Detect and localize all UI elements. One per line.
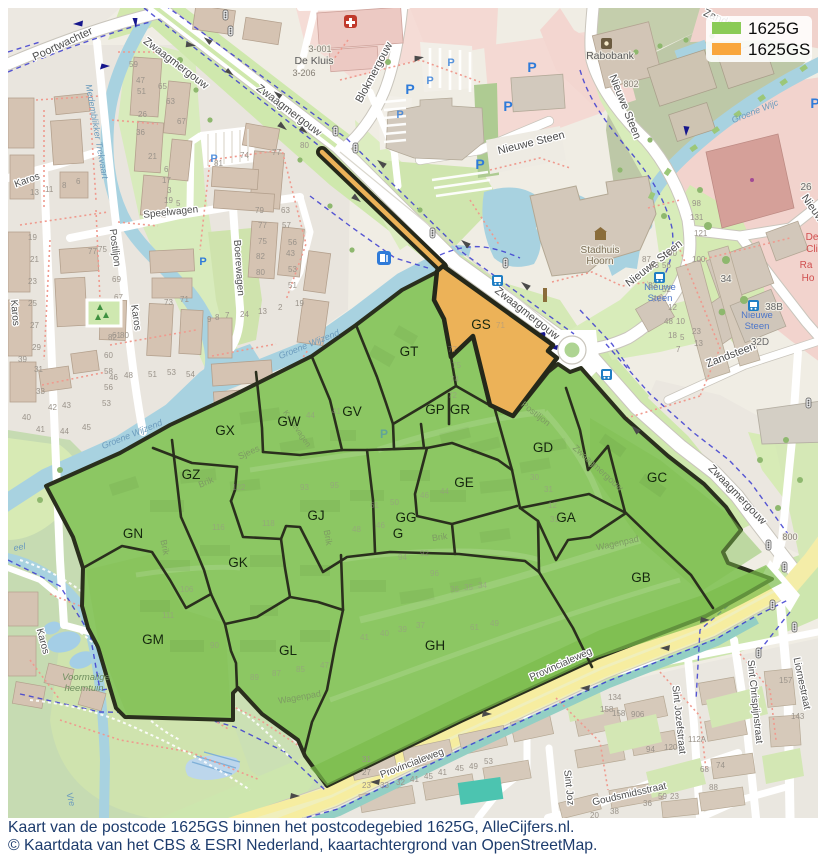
svg-text:De: De xyxy=(806,232,819,243)
svg-text:69: 69 xyxy=(112,275,121,284)
svg-text:P: P xyxy=(380,427,388,441)
svg-text:P: P xyxy=(396,109,403,121)
svg-text:33: 33 xyxy=(36,387,45,396)
svg-text:43: 43 xyxy=(286,249,295,258)
svg-text:GK: GK xyxy=(228,555,248,570)
svg-text:21: 21 xyxy=(148,152,157,161)
svg-text:56: 56 xyxy=(662,261,671,270)
svg-text:77: 77 xyxy=(258,221,267,230)
svg-text:39: 39 xyxy=(398,625,407,634)
svg-text:34: 34 xyxy=(478,581,487,590)
svg-text:71: 71 xyxy=(180,295,189,304)
svg-text:GW: GW xyxy=(277,414,301,429)
svg-text:59: 59 xyxy=(658,792,667,801)
svg-text:3-206: 3-206 xyxy=(292,68,315,78)
svg-text:36: 36 xyxy=(136,128,145,137)
svg-text:32D: 32D xyxy=(751,337,769,348)
svg-text:63: 63 xyxy=(281,206,290,215)
svg-text:87: 87 xyxy=(272,669,281,678)
svg-text:56: 56 xyxy=(288,238,297,247)
svg-text:44: 44 xyxy=(440,487,449,496)
svg-text:34: 34 xyxy=(720,274,732,285)
svg-text:5: 5 xyxy=(680,333,685,342)
svg-text:GG: GG xyxy=(395,510,416,525)
svg-text:112A: 112A xyxy=(688,735,707,744)
svg-text:Nieuwe: Nieuwe xyxy=(741,310,773,321)
svg-text:51: 51 xyxy=(288,281,297,290)
svg-text:44: 44 xyxy=(60,427,69,436)
svg-text:63: 63 xyxy=(166,97,175,106)
svg-text:Voormalige: Voormalige xyxy=(62,672,110,683)
svg-text:3-001: 3-001 xyxy=(308,44,331,54)
svg-text:158: 158 xyxy=(612,709,626,718)
svg-text:Steen: Steen xyxy=(745,321,770,332)
svg-text:GL: GL xyxy=(279,643,298,658)
svg-text:P: P xyxy=(475,156,484,172)
svg-text:80: 80 xyxy=(300,141,309,150)
svg-text:GP: GP xyxy=(425,402,445,417)
svg-text:13: 13 xyxy=(258,307,267,316)
svg-text:79: 79 xyxy=(255,206,264,215)
svg-text:68: 68 xyxy=(700,765,709,774)
svg-text:88: 88 xyxy=(709,783,718,792)
svg-text:75: 75 xyxy=(452,361,461,370)
svg-text:GD: GD xyxy=(533,440,554,455)
svg-text:74: 74 xyxy=(450,375,459,384)
svg-text:18: 18 xyxy=(668,331,677,340)
svg-text:74: 74 xyxy=(716,761,725,770)
svg-text:19: 19 xyxy=(295,299,304,308)
svg-text:111: 111 xyxy=(162,611,175,620)
svg-text:906: 906 xyxy=(631,710,645,719)
svg-text:13: 13 xyxy=(694,339,703,348)
svg-text:48: 48 xyxy=(664,317,673,326)
svg-text:8: 8 xyxy=(215,313,220,322)
svg-text:9: 9 xyxy=(207,315,212,324)
svg-text:158: 158 xyxy=(600,705,614,714)
svg-text:36: 36 xyxy=(450,585,459,594)
svg-text:75: 75 xyxy=(258,237,267,246)
svg-text:Rabobank: Rabobank xyxy=(586,50,635,62)
svg-text:De Kluis: De Kluis xyxy=(294,55,333,67)
svg-text:82: 82 xyxy=(256,252,265,261)
svg-text:23: 23 xyxy=(670,792,679,801)
svg-text:23: 23 xyxy=(692,327,701,336)
svg-text:11: 11 xyxy=(45,185,54,194)
svg-text:Cli: Cli xyxy=(806,244,818,255)
svg-text:67: 67 xyxy=(177,117,186,126)
svg-text:Karos: Karos xyxy=(8,299,21,326)
svg-text:35: 35 xyxy=(464,583,473,592)
svg-text:59: 59 xyxy=(129,60,138,69)
svg-text:38: 38 xyxy=(610,807,619,816)
svg-text:98: 98 xyxy=(692,199,701,208)
svg-text:GH: GH xyxy=(425,638,445,653)
svg-text:37: 37 xyxy=(416,621,425,630)
svg-text:1625GS: 1625GS xyxy=(748,40,810,59)
svg-text:95: 95 xyxy=(330,481,339,490)
svg-text:134: 134 xyxy=(608,693,622,702)
svg-text:41: 41 xyxy=(410,775,419,784)
svg-text:87: 87 xyxy=(642,255,651,264)
svg-text:1625G: 1625G xyxy=(748,19,799,38)
svg-text:96: 96 xyxy=(430,569,439,578)
svg-text:131: 131 xyxy=(690,213,704,222)
svg-text:80: 80 xyxy=(256,268,265,277)
svg-text:120: 120 xyxy=(664,743,678,752)
svg-text:6: 6 xyxy=(76,177,81,186)
svg-text:GV: GV xyxy=(342,404,362,419)
svg-text:13: 13 xyxy=(30,188,39,197)
svg-text:26: 26 xyxy=(138,110,147,119)
svg-text:Ho: Ho xyxy=(802,273,815,284)
svg-text:39: 39 xyxy=(18,355,27,364)
svg-text:49: 49 xyxy=(469,762,478,771)
svg-text:61: 61 xyxy=(370,501,379,510)
svg-text:31: 31 xyxy=(34,365,43,374)
svg-text:48: 48 xyxy=(124,371,133,380)
svg-text:23: 23 xyxy=(362,781,371,790)
svg-text:31: 31 xyxy=(544,485,553,494)
svg-text:46: 46 xyxy=(420,491,429,500)
svg-text:Kaart van de postcode 1625GS b: Kaart van de postcode 1625GS binnen het … xyxy=(8,819,574,836)
svg-text:106: 106 xyxy=(180,585,194,594)
svg-text:45: 45 xyxy=(82,423,91,432)
svg-text:53: 53 xyxy=(288,265,297,274)
svg-text:60: 60 xyxy=(104,351,113,360)
svg-text:46: 46 xyxy=(376,521,385,530)
svg-text:80: 80 xyxy=(120,331,129,340)
svg-text:19: 19 xyxy=(28,233,37,242)
svg-text:heemtuin: heemtuin xyxy=(64,683,103,694)
svg-text:143: 143 xyxy=(791,712,805,721)
svg-text:32: 32 xyxy=(396,778,405,787)
svg-text:41: 41 xyxy=(36,425,45,434)
svg-text:77: 77 xyxy=(448,345,457,354)
svg-text:GN: GN xyxy=(123,526,143,541)
svg-text:118: 118 xyxy=(262,519,275,528)
svg-text:94: 94 xyxy=(398,553,407,562)
svg-text:61: 61 xyxy=(470,623,479,632)
svg-text:42: 42 xyxy=(48,403,57,412)
svg-text:7: 7 xyxy=(225,311,230,320)
svg-text:41: 41 xyxy=(332,407,341,416)
svg-text:GS: GS xyxy=(471,317,491,332)
svg-text:19: 19 xyxy=(164,196,173,205)
svg-text:12: 12 xyxy=(548,501,557,510)
svg-text:45: 45 xyxy=(424,772,433,781)
svg-text:52: 52 xyxy=(662,285,671,294)
svg-text:116: 116 xyxy=(212,523,225,532)
svg-text:10: 10 xyxy=(676,317,685,326)
svg-text:40: 40 xyxy=(380,629,389,638)
svg-text:GX: GX xyxy=(215,423,235,438)
svg-text:21: 21 xyxy=(30,255,39,264)
svg-text:GB: GB xyxy=(631,570,651,585)
svg-text:40: 40 xyxy=(22,413,31,422)
svg-text:45: 45 xyxy=(455,764,464,773)
svg-text:31: 31 xyxy=(550,515,559,524)
svg-text:800: 800 xyxy=(782,532,797,542)
svg-text:25: 25 xyxy=(28,299,37,308)
svg-text:P: P xyxy=(210,153,217,165)
svg-text:P: P xyxy=(426,75,433,87)
svg-text:17: 17 xyxy=(162,176,171,185)
svg-text:77: 77 xyxy=(88,247,97,256)
svg-text:GE: GE xyxy=(454,475,474,490)
svg-text:GT: GT xyxy=(400,344,419,359)
svg-text:82: 82 xyxy=(108,333,117,342)
svg-text:12: 12 xyxy=(668,303,677,312)
svg-text:71: 71 xyxy=(496,321,505,330)
svg-text:44: 44 xyxy=(306,411,315,420)
svg-text:P: P xyxy=(527,59,536,75)
svg-text:P: P xyxy=(503,98,512,114)
svg-text:122: 122 xyxy=(232,483,246,492)
svg-text:43: 43 xyxy=(62,401,71,410)
svg-text:77: 77 xyxy=(652,295,661,304)
svg-text:121: 121 xyxy=(694,229,708,238)
svg-text:GR: GR xyxy=(450,402,471,417)
svg-text:3: 3 xyxy=(167,186,172,195)
svg-text:157: 157 xyxy=(779,676,793,685)
svg-text:72: 72 xyxy=(448,391,457,400)
svg-text:7: 7 xyxy=(676,345,681,354)
svg-text:92: 92 xyxy=(420,549,429,558)
svg-text:GJ: GJ xyxy=(307,508,324,523)
svg-text:24: 24 xyxy=(240,310,249,319)
svg-text:63: 63 xyxy=(650,261,659,270)
svg-text:51: 51 xyxy=(148,370,157,379)
svg-text:26: 26 xyxy=(800,182,812,193)
svg-text:GC: GC xyxy=(647,470,668,485)
svg-text:P: P xyxy=(447,57,454,69)
svg-text:G: G xyxy=(393,526,404,541)
svg-text:802: 802 xyxy=(623,79,638,89)
svg-text:GZ: GZ xyxy=(182,467,201,482)
svg-text:Hoorn: Hoorn xyxy=(586,256,613,267)
svg-text:65: 65 xyxy=(158,82,167,91)
svg-text:23: 23 xyxy=(28,277,37,286)
svg-text:GA: GA xyxy=(556,510,576,525)
svg-text:100: 100 xyxy=(692,255,706,264)
svg-text:74: 74 xyxy=(240,151,249,160)
svg-text:P: P xyxy=(405,81,414,97)
svg-text:48: 48 xyxy=(352,525,361,534)
svg-text:89: 89 xyxy=(250,673,259,682)
svg-text:30: 30 xyxy=(530,473,539,482)
svg-text:29: 29 xyxy=(32,343,41,352)
svg-text:46: 46 xyxy=(109,373,118,382)
svg-text:8: 8 xyxy=(62,181,67,190)
svg-text:85: 85 xyxy=(296,665,305,674)
svg-text:47: 47 xyxy=(320,661,329,670)
svg-text:54: 54 xyxy=(186,370,195,379)
svg-text:53: 53 xyxy=(167,368,176,377)
svg-text:47: 47 xyxy=(136,76,145,85)
svg-text:Ra: Ra xyxy=(800,260,813,271)
svg-text:31: 31 xyxy=(362,755,371,764)
svg-text:53: 53 xyxy=(102,399,111,408)
svg-text:36: 36 xyxy=(643,799,652,808)
svg-text:51: 51 xyxy=(137,87,146,96)
svg-text:27: 27 xyxy=(30,321,39,330)
svg-text:50: 50 xyxy=(390,498,399,507)
svg-text:53: 53 xyxy=(484,757,493,766)
svg-text:P: P xyxy=(199,256,206,268)
svg-text:© Kaartdata van het CBS & ESRI: © Kaartdata van het CBS & ESRI Nederland… xyxy=(8,837,597,854)
svg-text:94: 94 xyxy=(646,745,655,754)
svg-text:27: 27 xyxy=(362,768,371,777)
svg-text:GM: GM xyxy=(142,632,164,647)
svg-text:77: 77 xyxy=(272,148,281,157)
svg-text:5: 5 xyxy=(176,199,181,208)
svg-text:41: 41 xyxy=(360,633,369,642)
svg-text:75: 75 xyxy=(98,245,107,254)
svg-text:6: 6 xyxy=(164,165,169,174)
svg-text:93: 93 xyxy=(300,483,309,492)
svg-text:Stadhuis: Stadhuis xyxy=(581,245,620,256)
svg-text:2: 2 xyxy=(278,303,283,312)
svg-text:57: 57 xyxy=(282,221,291,230)
svg-text:49: 49 xyxy=(490,619,499,628)
svg-text:73: 73 xyxy=(164,298,173,307)
svg-text:41: 41 xyxy=(438,768,447,777)
svg-text:90: 90 xyxy=(210,641,219,650)
svg-text:90: 90 xyxy=(668,249,677,258)
svg-text:56: 56 xyxy=(104,383,113,392)
svg-text:33: 33 xyxy=(380,781,389,790)
